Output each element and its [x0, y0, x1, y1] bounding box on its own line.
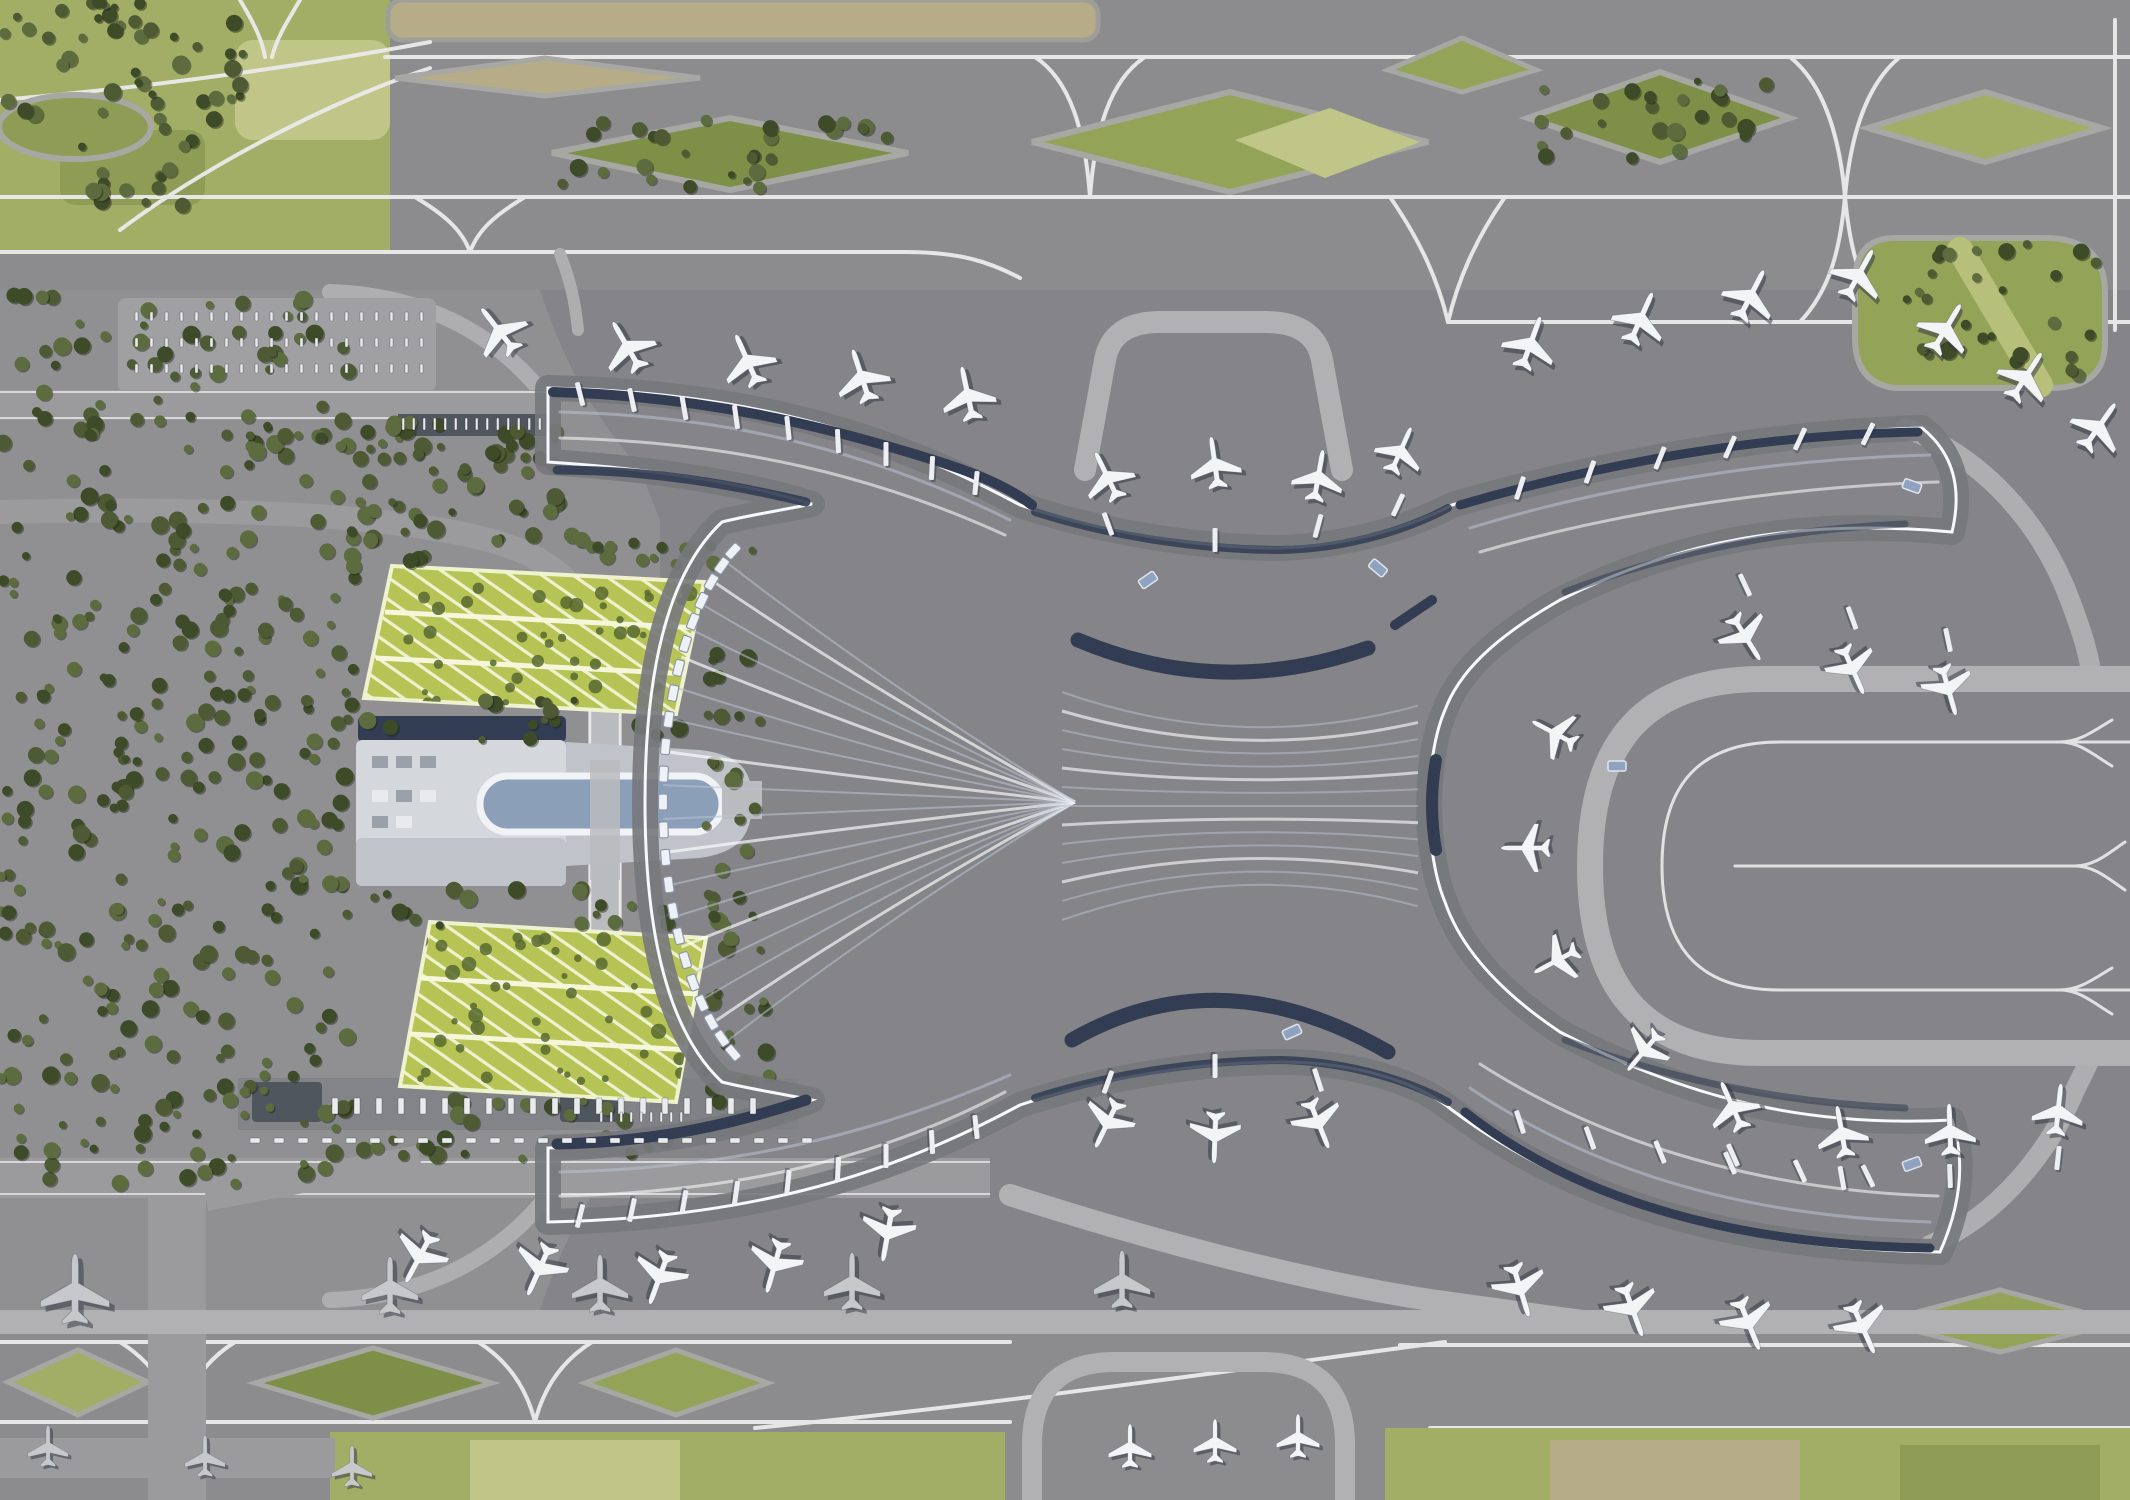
garage-planting: [545, 639, 554, 648]
garage-planting: [627, 625, 640, 638]
tree: [749, 164, 765, 180]
parked-vehicle: [420, 338, 423, 347]
parked-vehicle: [135, 364, 138, 373]
parked-vehicle: [464, 1098, 470, 1114]
tree: [157, 898, 164, 905]
tree: [432, 478, 446, 492]
tree: [182, 621, 199, 638]
parked-vehicle: [285, 364, 288, 373]
tree: [317, 840, 332, 855]
runway-strip: [388, 0, 1098, 40]
tree: [2013, 347, 2029, 363]
jet-bridge: [927, 1128, 935, 1154]
parked-vehicle: [376, 1098, 382, 1114]
parked-vehicle: [682, 1138, 692, 1143]
south-field-patch: [470, 1440, 680, 1500]
tree: [112, 904, 123, 915]
tree: [571, 697, 578, 704]
garage-planting: [588, 679, 602, 693]
tree: [97, 167, 109, 179]
parked-vehicle: [315, 338, 318, 347]
parked-vehicle: [640, 1112, 643, 1122]
tree: [235, 296, 250, 311]
tree: [740, 844, 754, 858]
tree: [265, 970, 280, 985]
tree: [112, 1175, 128, 1191]
tree: [2091, 257, 2102, 268]
tree: [100, 331, 110, 341]
tree: [308, 818, 319, 829]
tree: [58, 723, 71, 736]
parked-vehicle: [434, 418, 437, 430]
parked-vehicle: [420, 364, 423, 373]
tree: [353, 451, 368, 466]
tree: [68, 844, 84, 860]
tree: [260, 1087, 268, 1095]
tree: [265, 881, 275, 891]
tree: [747, 152, 758, 163]
tree: [543, 504, 558, 519]
tree: [755, 716, 764, 725]
parked-vehicle: [240, 312, 243, 321]
parked-vehicle: [210, 364, 213, 373]
parked-vehicle: [165, 312, 168, 321]
tree: [1740, 130, 1751, 141]
garage-planting: [614, 626, 627, 639]
tree: [180, 770, 196, 786]
tree: [646, 174, 656, 184]
tree: [509, 499, 524, 514]
tree: [239, 50, 247, 58]
tree: [506, 440, 518, 452]
parked-vehicle: [586, 1138, 596, 1143]
tree: [749, 803, 761, 815]
tree: [156, 767, 169, 780]
parked-vehicle: [345, 338, 348, 347]
parked-vehicle: [706, 1098, 712, 1114]
parked-vehicle: [405, 338, 408, 347]
tree: [16, 692, 27, 703]
tree: [2065, 364, 2077, 376]
fan-gate-tab: [659, 766, 669, 782]
tree: [156, 172, 164, 180]
tree: [173, 559, 185, 571]
tree: [134, 78, 142, 86]
tree: [170, 842, 178, 850]
tree: [574, 916, 588, 930]
parked-vehicle: [390, 338, 393, 347]
tree: [315, 432, 326, 443]
tree: [81, 488, 99, 506]
garage-planting: [541, 1033, 550, 1042]
tree: [336, 441, 347, 452]
tree: [359, 712, 376, 729]
parked-vehicle: [360, 312, 363, 321]
fan-gate-tab: [660, 738, 671, 755]
garage-planting: [490, 660, 497, 667]
tree: [110, 1084, 119, 1093]
parked-vehicle: [330, 338, 333, 347]
tree: [185, 412, 195, 422]
tree: [78, 34, 86, 42]
tree: [192, 1129, 200, 1137]
tree: [152, 678, 167, 693]
parked-vehicle: [497, 418, 500, 430]
tree: [491, 535, 502, 546]
tree: [24, 631, 40, 647]
tree: [1759, 77, 1773, 91]
tree: [42, 32, 55, 45]
tree: [73, 825, 90, 842]
tree: [1998, 243, 2015, 260]
tree: [159, 123, 171, 135]
tree: [881, 132, 893, 144]
tree: [181, 752, 192, 763]
parked-vehicle: [255, 338, 258, 347]
tree: [154, 113, 166, 125]
tree: [190, 382, 199, 391]
garage-planting: [561, 973, 567, 979]
tree: [1928, 269, 1937, 278]
parked-vehicle: [398, 1098, 404, 1114]
tree: [608, 915, 622, 929]
parked-vehicle: [778, 1138, 788, 1143]
tree: [25, 922, 36, 933]
tree: [24, 769, 41, 786]
tree: [2048, 317, 2060, 329]
tree: [683, 180, 696, 193]
tree: [294, 291, 312, 309]
garage-planting: [640, 1006, 652, 1018]
tree: [378, 453, 391, 466]
garage-planting: [445, 965, 460, 980]
tree: [2073, 243, 2089, 259]
tree: [12, 522, 23, 533]
garage-planting: [436, 940, 448, 952]
tree: [356, 1142, 372, 1158]
garage-planting: [473, 583, 484, 594]
tree: [102, 8, 117, 23]
tree: [37, 690, 50, 703]
parked-vehicle: [574, 1098, 580, 1114]
garage-planting: [532, 1017, 541, 1026]
tree: [22, 1035, 33, 1046]
parked-vehicle: [370, 1138, 380, 1143]
parked-vehicle: [150, 364, 153, 373]
tree: [330, 593, 339, 602]
tree: [2, 786, 12, 796]
parked-vehicle: [165, 364, 168, 373]
tree: [521, 466, 533, 478]
tree: [44, 750, 58, 764]
parked-vehicle: [390, 312, 393, 321]
tree: [1624, 83, 1640, 99]
tree: [328, 738, 339, 749]
garage-planting: [569, 598, 583, 612]
tree: [238, 688, 251, 701]
tree: [153, 396, 161, 404]
parked-vehicle: [658, 1138, 668, 1143]
tree: [478, 736, 486, 744]
jet-bridge: [929, 456, 937, 482]
tree: [140, 321, 148, 329]
tree: [130, 707, 143, 720]
tree: [38, 784, 52, 798]
tree: [345, 697, 360, 712]
tree: [294, 431, 302, 439]
tree: [220, 465, 233, 478]
parked-vehicle: [507, 418, 510, 430]
jet-bridge: [835, 429, 843, 455]
tree: [170, 372, 180, 382]
tree: [758, 1043, 775, 1060]
tree: [370, 893, 378, 901]
tree: [23, 460, 34, 471]
tree: [170, 33, 178, 41]
tree: [39, 921, 55, 937]
parked-vehicle: [466, 1138, 476, 1143]
tree: [342, 910, 351, 919]
tree: [261, 903, 274, 916]
tree: [143, 22, 158, 37]
tree: [16, 288, 33, 305]
parked-vehicle: [660, 1112, 663, 1122]
tree: [383, 720, 398, 735]
tree: [713, 709, 729, 725]
tree: [167, 1050, 180, 1063]
tree: [175, 198, 190, 213]
parked-vehicle: [195, 312, 198, 321]
garage-planting: [596, 932, 611, 947]
tree: [263, 422, 271, 430]
tree: [1714, 84, 1726, 96]
tree: [303, 631, 318, 646]
tree: [55, 4, 68, 17]
tree: [184, 445, 193, 454]
tree: [18, 815, 31, 828]
tree: [97, 794, 109, 806]
garage-planting: [644, 593, 653, 602]
garage-planting: [480, 943, 492, 955]
parked-vehicle: [706, 1138, 716, 1143]
tree: [241, 409, 255, 423]
tree: [14, 884, 25, 895]
parked-vehicle: [728, 1098, 734, 1114]
parked-vehicle: [530, 1098, 536, 1114]
garage-planting: [451, 1018, 457, 1024]
tree: [53, 337, 71, 355]
tree: [122, 755, 130, 763]
tree: [225, 48, 236, 59]
tree: [14, 1145, 29, 1160]
tree: [159, 1122, 169, 1132]
tree: [429, 466, 438, 475]
tree: [196, 94, 210, 108]
tree: [183, 901, 193, 911]
tree: [221, 1045, 234, 1058]
tree: [409, 914, 421, 926]
tree: [360, 425, 375, 440]
tree: [155, 1099, 172, 1116]
parked-vehicle: [285, 312, 288, 321]
parked-vehicle: [298, 1138, 308, 1143]
tree: [268, 348, 277, 357]
tree: [288, 1071, 299, 1082]
fan-gate-tab: [660, 849, 670, 866]
parked-vehicle: [486, 1098, 492, 1114]
tree: [116, 874, 127, 885]
parked-vehicle: [562, 1138, 572, 1143]
parked-vehicle: [476, 418, 479, 430]
tree: [2, 905, 17, 920]
tree: [520, 452, 530, 462]
parked-vehicle: [394, 1138, 404, 1143]
tree: [593, 911, 600, 918]
garage-planting: [600, 602, 607, 609]
tree: [97, 1006, 107, 1016]
parked-vehicle: [270, 312, 273, 321]
tree: [592, 542, 603, 553]
parked-vehicle: [135, 312, 138, 321]
tree: [383, 890, 391, 898]
tree: [355, 497, 365, 507]
tree: [319, 543, 334, 558]
tree: [173, 635, 188, 650]
tree: [157, 346, 173, 362]
tree: [1539, 85, 1548, 94]
tree: [336, 1100, 350, 1114]
tree: [158, 925, 175, 942]
tree: [753, 182, 766, 195]
south-field-patch: [1550, 1440, 1800, 1500]
tree: [15, 357, 29, 371]
garage-planting: [570, 672, 578, 680]
garage-planting: [403, 634, 413, 644]
garage-planting: [481, 1072, 493, 1084]
garage-planting: [517, 632, 528, 643]
tree: [322, 1009, 337, 1024]
garage-planting: [540, 632, 547, 639]
tree: [649, 554, 657, 562]
tree: [1667, 123, 1685, 141]
garage-planting: [577, 1077, 585, 1085]
tree: [198, 503, 208, 513]
jet-bridge: [1947, 1164, 1955, 1190]
tree: [28, 747, 44, 763]
tree: [210, 687, 224, 701]
tree: [64, 1072, 77, 1085]
tree: [596, 116, 610, 130]
tree: [579, 1098, 587, 1106]
tree: [749, 547, 756, 554]
tree: [78, 143, 86, 151]
tree: [34, 719, 44, 729]
parked-vehicle: [300, 364, 303, 373]
tree: [200, 945, 218, 963]
garage-planting: [533, 590, 546, 603]
tree: [39, 345, 51, 357]
tree: [1722, 112, 1736, 126]
tree: [95, 400, 104, 409]
tree: [205, 640, 221, 656]
tree: [203, 1089, 215, 1101]
parked-vehicle: [552, 1098, 558, 1114]
tree: [99, 465, 110, 476]
tree: [80, 1139, 88, 1147]
tree: [13, 13, 21, 21]
tree: [316, 1022, 326, 1032]
garage-planting: [570, 656, 580, 666]
parked-vehicle: [490, 1138, 500, 1143]
tree: [708, 656, 716, 664]
fan-gate-tab: [659, 822, 669, 838]
parked-vehicle: [528, 418, 531, 430]
garage-planting: [540, 1045, 550, 1055]
tree: [223, 605, 235, 617]
tree: [325, 1144, 342, 1161]
tree: [101, 511, 118, 528]
tree: [765, 153, 776, 164]
tree: [94, 983, 107, 996]
garage-planting: [531, 935, 543, 947]
tree: [331, 1124, 340, 1133]
parked-vehicle: [402, 418, 405, 430]
tree: [102, 674, 115, 687]
tree: [1942, 247, 1956, 261]
tree: [194, 828, 207, 841]
tree: [210, 619, 228, 637]
tree: [309, 1055, 321, 1067]
tree: [37, 411, 52, 426]
parked-vehicle: [332, 1098, 338, 1114]
tree: [194, 563, 207, 576]
parked-vehicle: [465, 418, 468, 430]
tree: [136, 1144, 145, 1153]
tree: [277, 428, 293, 444]
tree: [367, 504, 381, 518]
parked-vehicle: [345, 364, 348, 373]
tree: [124, 515, 132, 523]
tree: [310, 929, 320, 939]
tree: [232, 77, 248, 93]
parked-vehicle: [346, 1138, 356, 1143]
parked-vehicle: [802, 1138, 812, 1143]
parked-vehicle: [375, 364, 378, 373]
tree: [757, 946, 764, 953]
tree: [159, 583, 171, 595]
tree: [176, 523, 191, 538]
tree: [249, 752, 264, 767]
parked-vehicle: [225, 338, 228, 347]
tree: [128, 15, 141, 28]
tree: [334, 413, 351, 430]
parked-vehicle: [754, 1138, 764, 1143]
tree: [704, 711, 713, 720]
parked-vehicle: [390, 364, 393, 373]
jet-bridge: [833, 1155, 841, 1181]
tree: [316, 668, 325, 677]
tree: [628, 538, 639, 549]
tree: [190, 544, 198, 552]
tree: [214, 710, 229, 725]
garage-planting: [558, 634, 566, 642]
garage-planting: [456, 1044, 465, 1053]
tree: [154, 415, 165, 426]
garage-planting: [512, 932, 522, 942]
tree: [192, 42, 201, 51]
tree: [151, 516, 169, 534]
tree: [56, 59, 69, 72]
